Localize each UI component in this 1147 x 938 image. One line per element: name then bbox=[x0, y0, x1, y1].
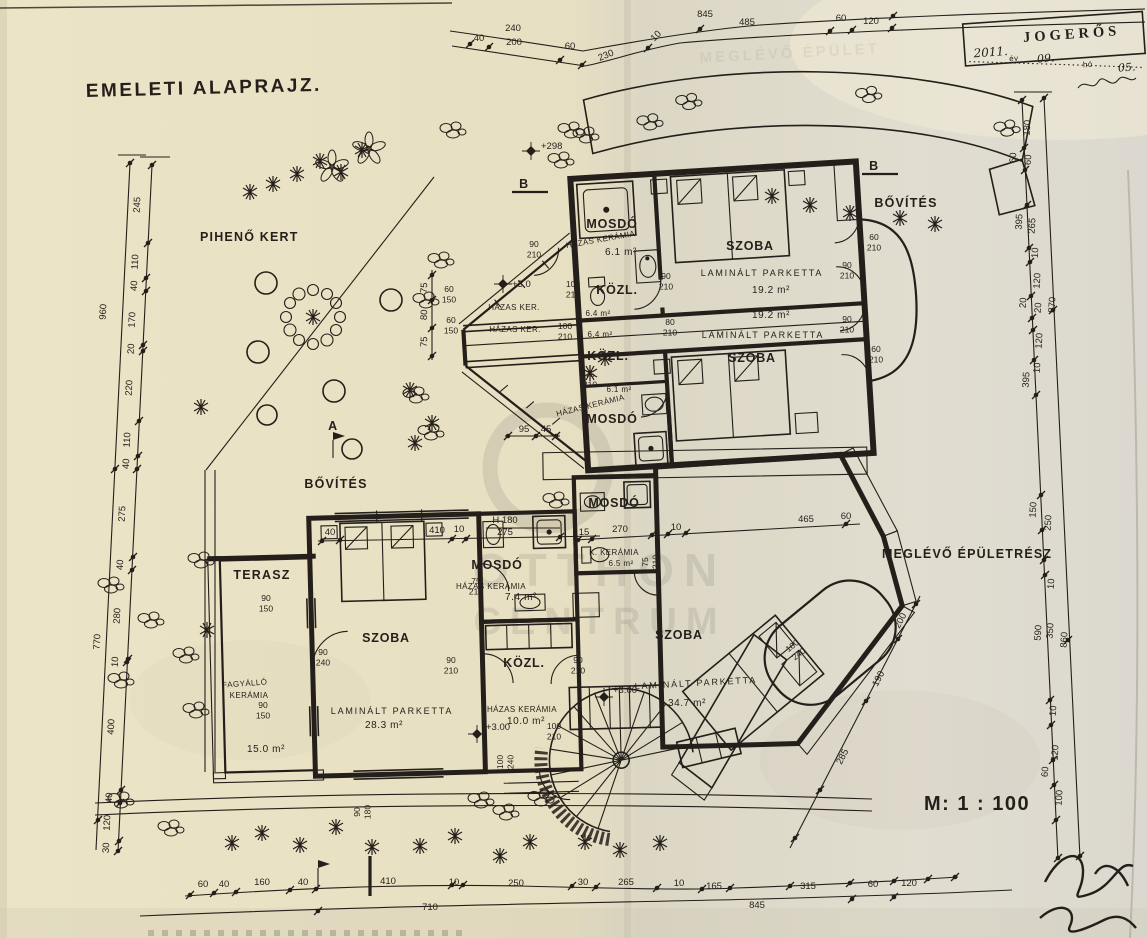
floor-plan-drawing: OTTHON CENTRUM MEGLÉVŐ ÉPÜLET bbox=[0, 0, 1147, 938]
dim-label: 270 bbox=[612, 524, 628, 535]
room-name: SZOBA bbox=[362, 631, 410, 645]
room-name: SZOBA bbox=[726, 239, 774, 253]
dim-label-total: 770 bbox=[92, 634, 104, 650]
room-name: SZOBA bbox=[655, 628, 703, 642]
dim-label: 180 bbox=[1021, 120, 1033, 137]
dim-label: 60 bbox=[836, 13, 847, 24]
opening-dim: 100240 bbox=[495, 755, 516, 769]
dim-label: 845 bbox=[697, 9, 713, 20]
svg-text:210: 210 bbox=[558, 332, 572, 342]
room-finish: LAMINÁLT PARKETTA bbox=[701, 268, 823, 278]
room-name: SZOBA bbox=[728, 351, 776, 365]
spot-level: +3.00 bbox=[486, 722, 510, 733]
scale-label: M: 1 : 100 bbox=[924, 793, 1030, 815]
svg-text:90: 90 bbox=[661, 271, 671, 281]
dim-label: 10 bbox=[1030, 247, 1042, 258]
svg-text:100: 100 bbox=[495, 755, 505, 769]
svg-text:80: 80 bbox=[665, 317, 675, 327]
dim-label: 265 bbox=[1026, 218, 1038, 235]
scanned-floor-plan-page: OTTHON CENTRUM MEGLÉVŐ ÉPÜLET bbox=[0, 0, 1147, 938]
dim-label: 170 bbox=[127, 312, 139, 328]
room-name: MOSDÓ bbox=[588, 495, 639, 510]
svg-text:210: 210 bbox=[663, 328, 677, 338]
svg-text:75: 75 bbox=[640, 557, 650, 567]
svg-text:150: 150 bbox=[256, 711, 270, 721]
room-name: MOSDÓ bbox=[471, 557, 522, 572]
svg-text:90: 90 bbox=[529, 239, 539, 249]
dim-label: 30 bbox=[578, 877, 589, 888]
dim-label: 40 bbox=[129, 280, 141, 291]
dim-label: 410 bbox=[380, 876, 396, 887]
dim-label: 20 bbox=[1033, 302, 1045, 313]
room-area: 6.1 m² bbox=[605, 247, 637, 258]
dim-label: 395 bbox=[1013, 214, 1025, 231]
svg-text:75: 75 bbox=[471, 576, 481, 586]
room-finish: LAMINÁLT PARKETTA bbox=[331, 706, 453, 716]
svg-text:90: 90 bbox=[352, 807, 362, 817]
dim-label: 280 bbox=[112, 608, 124, 624]
dim-label-total: 960 bbox=[98, 304, 110, 320]
room-area: 10.0 m² bbox=[507, 716, 545, 727]
dim-label: 10 bbox=[449, 877, 460, 888]
dim-label: 10 bbox=[1032, 362, 1044, 373]
dim-label: 40 bbox=[325, 527, 336, 538]
dim-label: 150 bbox=[1027, 502, 1039, 519]
dim-label: 75 bbox=[419, 336, 431, 347]
dim-label: 40 bbox=[298, 877, 309, 888]
svg-text:210: 210 bbox=[651, 555, 661, 569]
section-letter-b2: B bbox=[869, 159, 879, 173]
svg-text:210: 210 bbox=[869, 355, 883, 365]
room-finish: HÁZAS KER. bbox=[489, 325, 541, 334]
svg-text:210: 210 bbox=[571, 666, 585, 676]
extension-label-right: BŐVÍTÉS bbox=[874, 195, 937, 210]
dim-label: 100 bbox=[1053, 790, 1065, 807]
svg-text:150: 150 bbox=[259, 604, 273, 614]
dim-label: 395 bbox=[1020, 372, 1032, 389]
dim-label: 120 bbox=[1033, 333, 1045, 350]
svg-text:210: 210 bbox=[566, 290, 580, 300]
room-name: KÖZL. bbox=[503, 655, 545, 670]
dim-label: 40 bbox=[115, 559, 127, 570]
dim-label: 350 bbox=[1044, 623, 1056, 640]
svg-text:210: 210 bbox=[840, 271, 854, 281]
stamp-day: 05. bbox=[1118, 60, 1136, 74]
dim-label: 870 bbox=[1046, 297, 1058, 314]
dim-label: 120 bbox=[1031, 273, 1043, 290]
svg-text:210: 210 bbox=[583, 380, 597, 390]
dim-label: 120 bbox=[102, 815, 114, 831]
dim-label: 165 bbox=[706, 881, 722, 892]
stamp-year: 2011. bbox=[972, 44, 1008, 60]
dim-label: 30 bbox=[101, 842, 113, 853]
svg-text:100: 100 bbox=[547, 721, 561, 731]
dim-label: 95 bbox=[519, 424, 530, 435]
room-finish: K. KERÁMIA bbox=[589, 548, 639, 557]
dim-label: 240 bbox=[505, 23, 521, 34]
dim-label: 315 bbox=[800, 881, 816, 892]
dim-label: 60 bbox=[565, 41, 576, 52]
svg-text:210: 210 bbox=[469, 587, 483, 597]
svg-text:90: 90 bbox=[842, 314, 852, 324]
dim-label: 250 bbox=[1042, 515, 1054, 532]
room-finish: HÁZAS KERÁMIA bbox=[487, 705, 557, 714]
svg-text:180: 180 bbox=[363, 805, 373, 819]
spot-level: +3.00 bbox=[613, 685, 637, 696]
dim-label: 120 bbox=[863, 16, 879, 27]
svg-text:210: 210 bbox=[444, 666, 458, 676]
room-name: KÖZL. bbox=[596, 282, 638, 297]
svg-text:60: 60 bbox=[444, 284, 454, 294]
svg-text:90: 90 bbox=[446, 655, 456, 665]
room-name: TERASZ bbox=[233, 568, 290, 582]
dim-label: 860 bbox=[1058, 632, 1070, 649]
svg-text:150: 150 bbox=[444, 326, 458, 336]
room-area: 34.7 m² bbox=[668, 698, 706, 709]
dim-label: 400 bbox=[106, 719, 118, 735]
dim-label: 80 bbox=[419, 309, 431, 320]
dim-label: 10 bbox=[110, 656, 122, 667]
room-name: KÖZL. bbox=[587, 348, 629, 363]
svg-text:90: 90 bbox=[573, 655, 583, 665]
room-area: 7.4 m² bbox=[505, 592, 537, 603]
dim-label: 40 bbox=[474, 33, 485, 44]
stamp-month: 09. bbox=[1037, 51, 1055, 65]
dim-label: 120 bbox=[901, 878, 917, 889]
section-letter-a: A bbox=[328, 419, 338, 433]
dim-label: 110 bbox=[130, 254, 142, 270]
svg-text:100: 100 bbox=[558, 321, 572, 331]
extension-label-left: BŐVÍTÉS bbox=[304, 476, 367, 491]
dim-label: 485 bbox=[739, 17, 755, 28]
dim-label: H 180 bbox=[492, 515, 517, 526]
existing-building-label: MEGLÉVŐ ÉPÜLETRÉSZ bbox=[882, 546, 1052, 561]
svg-text:60: 60 bbox=[446, 315, 456, 325]
opening-dim: 100210 bbox=[558, 321, 572, 342]
dim-label: 10 bbox=[1048, 705, 1060, 716]
dim-label: 75 bbox=[419, 282, 431, 293]
room-area: 6.4 m² bbox=[585, 309, 610, 318]
dim-label: 60 bbox=[198, 879, 209, 890]
room-area: 15.0 m² bbox=[247, 744, 285, 755]
room-name: MOSDÓ bbox=[586, 216, 637, 231]
room-name: MOSDÓ bbox=[586, 411, 637, 426]
svg-text:75: 75 bbox=[585, 369, 595, 379]
dim-label: 60 bbox=[1040, 766, 1052, 777]
dim-label: 60 bbox=[868, 879, 879, 890]
dim-label: 200 bbox=[506, 37, 522, 48]
svg-text:210: 210 bbox=[659, 282, 673, 292]
room-area: 6.4 m² bbox=[587, 330, 612, 339]
dim-label: 15 bbox=[579, 527, 590, 538]
dim-label: 275 bbox=[117, 506, 129, 522]
dim-label: 10 bbox=[674, 878, 685, 889]
dim-label: 120 bbox=[1049, 745, 1061, 762]
opening-dim: 100210 bbox=[566, 279, 580, 300]
room-finish: KERÁMIA bbox=[230, 691, 269, 700]
dim-label: 10 bbox=[454, 524, 465, 535]
dim-label-total: 710 bbox=[422, 902, 438, 913]
spot-level: +3.0 bbox=[512, 279, 531, 290]
dim-label: 60 bbox=[1008, 152, 1020, 163]
svg-text:100: 100 bbox=[566, 279, 580, 289]
svg-text:60: 60 bbox=[871, 344, 881, 354]
room-area: 6.1 m² bbox=[606, 385, 631, 394]
svg-text:90: 90 bbox=[318, 647, 328, 657]
svg-text:90: 90 bbox=[261, 593, 271, 603]
dim-label: 10 bbox=[1046, 578, 1058, 589]
opening-dim: 100210 bbox=[547, 721, 561, 742]
svg-text:240: 240 bbox=[506, 755, 516, 769]
stamp-ev-label: év bbox=[1009, 54, 1019, 64]
dim-label: 590 bbox=[1032, 625, 1044, 642]
room-finish: LAMINÁLT PARKETTA bbox=[702, 330, 824, 340]
room-area: 28.3 m² bbox=[365, 720, 403, 731]
svg-text:210: 210 bbox=[867, 243, 881, 253]
svg-text:90: 90 bbox=[842, 260, 852, 270]
dim-label: 410 bbox=[429, 525, 445, 536]
room-area: 6.5 m² bbox=[608, 559, 633, 568]
dim-label: 60 bbox=[1023, 154, 1035, 165]
section-letter-b1: B bbox=[519, 177, 529, 191]
dim-label: 20 bbox=[126, 343, 138, 354]
svg-text:150: 150 bbox=[442, 295, 456, 305]
dim-label: 45 bbox=[541, 424, 552, 435]
stamp-ho-label: hó bbox=[1083, 60, 1093, 70]
dim-label: 465 bbox=[798, 514, 814, 525]
room-finish: HÁZAS KERÁMIA bbox=[456, 582, 526, 591]
garden-label: PIHENŐ KERT bbox=[200, 229, 299, 244]
dim-label: 265 bbox=[618, 877, 634, 888]
dim-label: 40 bbox=[104, 792, 116, 803]
svg-text:240: 240 bbox=[316, 658, 330, 668]
dim-label: 40 bbox=[219, 879, 230, 890]
svg-text:210: 210 bbox=[527, 250, 541, 260]
dim-label: 160 bbox=[254, 877, 270, 888]
svg-text:210: 210 bbox=[840, 325, 854, 335]
dim-label: 10 bbox=[671, 522, 682, 533]
dim-label: 275 bbox=[497, 527, 513, 538]
room-area: 19.2 m² bbox=[752, 310, 790, 321]
dim-label-total: 845 bbox=[749, 900, 765, 911]
room-finish: HÁZAS KER. bbox=[488, 303, 540, 312]
room-area: 19.2 m² bbox=[752, 285, 790, 296]
dim-label: 245 bbox=[132, 197, 144, 213]
dim-label: 20 bbox=[1018, 297, 1030, 308]
svg-text:60: 60 bbox=[869, 232, 879, 242]
dim-label: 40 bbox=[121, 458, 133, 469]
dim-label: 60 bbox=[841, 511, 852, 522]
dim-label: 250 bbox=[508, 878, 524, 889]
spot-level: +298 bbox=[541, 141, 562, 152]
svg-text:90: 90 bbox=[258, 700, 268, 710]
dim-label: 110 bbox=[122, 432, 134, 448]
svg-text:210: 210 bbox=[547, 732, 561, 742]
dim-label: 220 bbox=[124, 380, 136, 396]
